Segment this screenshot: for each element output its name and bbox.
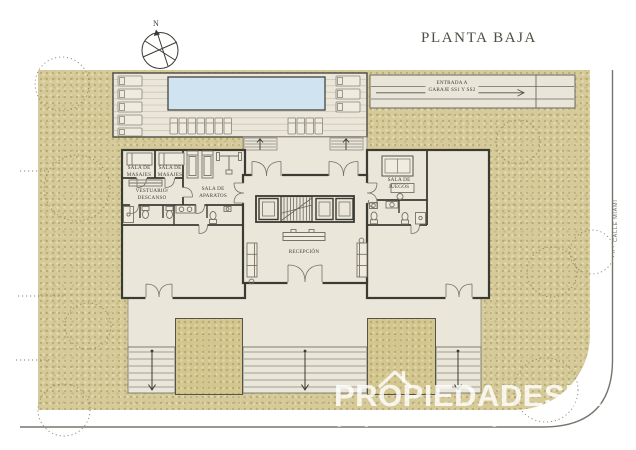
room-label-recepcion: RECEPCIÓN (289, 249, 320, 256)
compass-north-label: N (153, 19, 159, 28)
street-name-label: CALLE MIAMI (613, 199, 619, 242)
room-label-masajes-2: SALA DE MASAJES (158, 165, 182, 179)
plan-title: PLANTA BAJA (414, 30, 544, 47)
room-label-vestuario: VESTUARIO/ DESCANSO (136, 188, 169, 202)
compass-rose (0, 0, 636, 450)
room-label-juegos: SALA DE JUEGOS (388, 177, 411, 191)
ramp-label-line1: ENTRADA A (428, 80, 475, 87)
floor-plan-canvas: PLANTA BAJA N ENTRADA A GARAJE SS1 Y SS2… (0, 0, 636, 450)
ramp-label-line2: GARAJE SS1 Y SS2 (428, 87, 475, 94)
room-label-aparatos: SALA DE APARATOS (199, 186, 227, 200)
room-label-masajes-1: SALA DE MASAJES (127, 165, 151, 179)
ramp-label: ENTRADA A GARAJE SS1 Y SS2 (425, 80, 478, 94)
